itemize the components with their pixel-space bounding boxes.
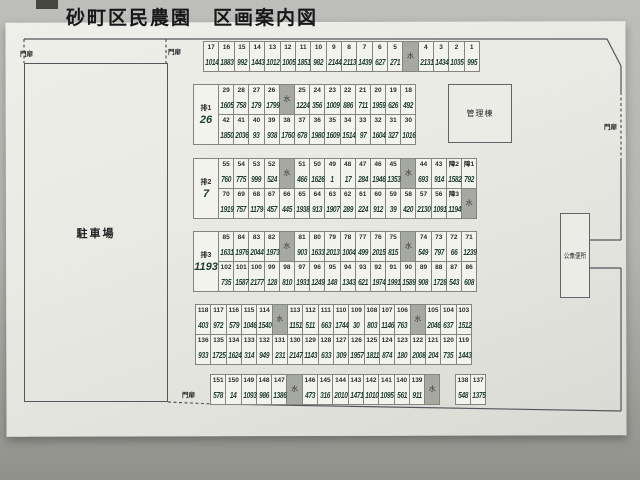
plot-number: 111 — [319, 305, 333, 317]
plot-cell: 801633 — [309, 231, 325, 262]
plot-number: 44 — [416, 159, 430, 171]
plot-handwritten-value: 1980 — [311, 127, 323, 144]
plot-number: 130 — [288, 335, 302, 347]
plot-cell: 136933 — [195, 334, 211, 365]
plot-handwritten-value: 1744 — [335, 317, 347, 334]
plot-number: 3 — [434, 42, 448, 54]
plot-handwritten-value: 1626 — [311, 171, 323, 188]
plot-handwritten-value: 2177 — [251, 274, 263, 291]
plot-handwritten-value: 1443 — [458, 347, 470, 364]
plot-handwritten-value: 1 — [327, 171, 339, 188]
plot-handwritten-value: 224 — [357, 201, 369, 218]
side-label-text: 排2 — [201, 177, 212, 187]
plot-number: 108 — [365, 305, 379, 317]
plot-cell: 障31194 — [446, 188, 462, 219]
plot-number: 95 — [325, 262, 339, 274]
side-label-handwritten-value: 1193 — [194, 261, 218, 273]
plot-cell: 39938 — [264, 114, 280, 145]
plot-cell: 障1792 — [461, 158, 477, 189]
plot-handwritten-value: 1631 — [220, 244, 232, 261]
plot-handwritten-value: 986 — [258, 387, 270, 404]
plot-number: 115 — [242, 305, 256, 317]
plot-handwritten-value: 1194 — [448, 201, 460, 218]
plot-handwritten-value: 1540 — [259, 317, 271, 334]
plot-cell: 106763 — [394, 304, 410, 335]
plot-cell: 58420 — [400, 188, 416, 219]
plot-cell: 1431471 — [348, 374, 364, 405]
plot-cell: 87543 — [446, 261, 462, 292]
plot-handwritten-value: 1004 — [342, 244, 354, 261]
plot-handwritten-value: 289 — [342, 201, 354, 218]
plot-number: 27 — [249, 85, 263, 97]
plot-cell: 832044 — [248, 231, 264, 262]
plot-number: 105 — [426, 305, 440, 317]
plot-cell: 64913 — [309, 188, 325, 219]
plot-handwritten-value: 1179 — [251, 201, 263, 218]
plot-number: 79 — [325, 232, 339, 244]
plot-cell: 941343 — [340, 261, 356, 292]
plot-cell: 1151046 — [241, 304, 257, 335]
plot-cell: 148986 — [256, 374, 272, 405]
plot-handwritten-value: 561 — [396, 387, 408, 404]
plot-number: 4 — [419, 42, 433, 54]
plot-handwritten-value: 999 — [251, 171, 263, 188]
plot-handwritten-value: 775 — [235, 171, 247, 188]
plot-cell: 15014 — [225, 374, 241, 405]
plot-number: 55 — [219, 159, 233, 171]
plot-number: 138 — [456, 375, 470, 387]
plot-cell: 75815 — [385, 231, 401, 262]
plot-cell: 93621 — [355, 261, 371, 292]
plot-number: 50 — [310, 159, 324, 171]
plot-handwritten-value: 549 — [418, 244, 430, 261]
plot-cell: 341514 — [340, 114, 356, 145]
plot-handwritten-value: 1143 — [305, 347, 317, 364]
plot-cell: 99128 — [264, 261, 280, 292]
plot-handwritten-value: 1151 — [289, 317, 301, 334]
plot-cell: 37678 — [294, 114, 310, 145]
plot-cell: 1251811 — [364, 334, 380, 365]
plot-cell: 1071146 — [379, 304, 395, 335]
plot-number: 118 — [196, 305, 210, 317]
plot-number: 26 — [265, 85, 279, 97]
water-tap-cell: 水 — [410, 304, 426, 335]
plot-cell: 118403 — [195, 304, 211, 335]
plot-cell: 140561 — [394, 374, 410, 405]
block-side-label: 排31193 — [193, 231, 219, 292]
parking-label: 駐車場 — [77, 225, 116, 241]
plot-number: 124 — [380, 335, 394, 347]
plot-handwritten-value: 933 — [197, 347, 209, 364]
plot-row: 55760547755399952524水5146650162649148174… — [218, 158, 477, 189]
plot-cell: 121005 — [280, 41, 296, 72]
plot-number: 40 — [249, 115, 263, 127]
plot-handwritten-value: 316 — [319, 387, 331, 404]
plot-number: 38 — [280, 115, 294, 127]
plot-number: 84 — [234, 232, 248, 244]
plot-cell: 障21582 — [446, 158, 462, 189]
plot-number: 51 — [295, 159, 309, 171]
plot-cell: 711239 — [461, 231, 477, 262]
plot-number: 49 — [325, 159, 339, 171]
plot-row: 851631841976832044821973水819038016337920… — [218, 231, 477, 262]
plot-number: 2 — [449, 42, 463, 54]
plot-cell: 62289 — [340, 188, 356, 219]
plot-number: 障3 — [447, 189, 461, 201]
plot-cell: 501626 — [309, 158, 325, 189]
plot-handwritten-value: 1959 — [372, 97, 384, 114]
east-wall — [590, 66, 621, 411]
plot-cell: 4817 — [340, 158, 356, 189]
plot-handwritten-value: 356 — [311, 97, 323, 114]
plot-cell: 351609 — [324, 114, 340, 145]
plot-handwritten-value: 621 — [357, 274, 369, 291]
plot-number: 29 — [219, 85, 233, 97]
plot-number: 59 — [386, 189, 400, 201]
plot-number: 102 — [219, 262, 233, 274]
plot-handwritten-value: 284 — [357, 171, 369, 188]
plot-handwritten-value: 735 — [443, 347, 455, 364]
plot-number: 77 — [356, 232, 370, 244]
plot-handwritten-value: 972 — [213, 317, 225, 334]
plot-cell: 95148 — [324, 261, 340, 292]
plot-cell: 98810 — [279, 261, 295, 292]
plot-number: 99 — [265, 262, 279, 274]
plot-handwritten-value: 457 — [266, 201, 278, 218]
plot-handwritten-value: 874 — [381, 347, 393, 364]
plot-handwritten-value: 1851 — [297, 54, 309, 71]
plot-cell: 1411095 — [378, 374, 394, 405]
plot-number: 30 — [401, 115, 415, 127]
plot-number: 37 — [295, 115, 309, 127]
plot-cell: 1141540 — [256, 304, 272, 335]
plot-number: 93 — [356, 262, 370, 274]
plot-handwritten-value: 1471 — [350, 387, 362, 404]
plot-handwritten-value: 1760 — [281, 127, 293, 144]
plot-cell: 102735 — [218, 261, 234, 292]
plot-handwritten-value: 1604 — [372, 127, 384, 144]
plot-number: 14 — [250, 42, 264, 54]
plot-handwritten-value: 608 — [463, 274, 475, 291]
photo-background: 砂町区民農園 区画案内図 駐車場 管理棟 公衆便所 — [0, 0, 640, 480]
plot-number: 39 — [265, 115, 279, 127]
plot-number: 36 — [310, 115, 324, 127]
plot-cell: 145316 — [317, 374, 333, 405]
plot-cell: 291605 — [218, 84, 234, 115]
plot-cell: 116579 — [226, 304, 242, 335]
plot-number: 60 — [371, 189, 385, 201]
plot-cell: 651938 — [294, 188, 310, 219]
plot-number: 20 — [371, 85, 385, 97]
plot-number: 140 — [395, 375, 409, 387]
plot-number: 136 — [196, 335, 210, 347]
plot-handwritten-value: 309 — [335, 347, 347, 364]
plot-handwritten-value: 39 — [387, 201, 399, 218]
plot-cell: 1101744 — [333, 304, 349, 335]
plot-handwritten-value: 445 — [281, 201, 293, 218]
plot-handwritten-value: 578 — [212, 387, 224, 404]
plot-handwritten-value: 1991 — [387, 274, 399, 291]
plot-handwritten-value: 66 — [448, 244, 460, 261]
plot-cell: 171014 — [203, 41, 219, 72]
plot-handwritten-value: 995 — [466, 54, 478, 71]
farm-map: 砂町区民農園 区画案内図 駐車場 管理棟 公衆便所 — [0, 0, 640, 480]
plot-cell: 1442010 — [332, 374, 348, 405]
plot-cell: 381760 — [279, 114, 295, 145]
plot-cell: 60912 — [370, 188, 386, 219]
plot-handwritten-value: 1434 — [435, 54, 447, 71]
plot-handwritten-value: 1443 — [251, 54, 263, 71]
toilet-label: 公衆便所 — [564, 251, 586, 261]
plot-cell: 1471386 — [271, 374, 287, 405]
plot-cell: 4093 — [248, 114, 264, 145]
plot-handwritten-value: 1439 — [359, 54, 371, 71]
plot-handwritten-value: 2036 — [235, 127, 247, 144]
plot-cell: 1052046 — [425, 304, 441, 335]
plot-handwritten-value: 271 — [389, 54, 401, 71]
plot-number: 119 — [457, 335, 471, 347]
plot-handwritten-value: 128 — [266, 274, 278, 291]
plot-handwritten-value: 1005 — [282, 54, 294, 71]
plot-number: 15 — [235, 42, 249, 54]
water-tap-cell: 水 — [400, 231, 416, 262]
plot-number: 16 — [219, 42, 233, 54]
plot-number: 83 — [249, 232, 263, 244]
plot-cell: 421850 — [218, 114, 234, 145]
plot-handwritten-value: 914 — [433, 171, 445, 188]
plot-cell: 111663 — [318, 304, 334, 335]
plot-number: 52 — [265, 159, 279, 171]
plot-row: 1515781501414910931489861471386水14647314… — [210, 374, 486, 405]
plot-number: 85 — [219, 232, 233, 244]
plot-cell: 121204 — [425, 334, 441, 365]
plot-cell: 572130 — [415, 188, 431, 219]
plot-number: 75 — [386, 232, 400, 244]
plot-number: 18 — [401, 85, 415, 97]
plot-handwritten-value: 903 — [296, 244, 308, 261]
plot-cell: 1131151 — [287, 304, 303, 335]
plot-number: 116 — [227, 305, 241, 317]
side-label-text: 排3 — [201, 250, 212, 260]
plot-handwritten-value: 2013 — [327, 244, 339, 261]
plot-handwritten-value: 757 — [235, 201, 247, 218]
management-building: 管理棟 — [448, 84, 512, 143]
plot-number: 137 — [471, 375, 485, 387]
plot-cell: 1261957 — [348, 334, 364, 365]
plot-handwritten-value: 1091 — [433, 201, 445, 218]
plot-cell: 31434 — [433, 41, 449, 72]
plot-cell: 5939 — [385, 188, 401, 219]
plot-number: 107 — [380, 305, 394, 317]
plot-cell: 141443 — [249, 41, 265, 72]
plot-handwritten-value: 1249 — [311, 274, 323, 291]
water-tap-cell: 水 — [424, 374, 440, 405]
plot-handwritten-value: 1512 — [458, 317, 470, 334]
plot-cell: 146473 — [302, 374, 318, 405]
plot-handwritten-value: 815 — [387, 244, 399, 261]
plot-number: 145 — [318, 375, 332, 387]
plot-handwritten-value: 466 — [296, 171, 308, 188]
plot-handwritten-value: 1633 — [311, 244, 323, 261]
plot-handwritten-value: 2008 — [412, 347, 424, 364]
plot-row: 1710141618831599214144313101212100511185… — [203, 41, 480, 72]
plot-cell: 1031512 — [456, 304, 472, 335]
plot-number: 33 — [356, 115, 370, 127]
plot-number: 106 — [395, 305, 409, 317]
plot-number: 97 — [295, 262, 309, 274]
plot-handwritten-value: 912 — [372, 201, 384, 218]
plot-cell: 111851 — [295, 41, 311, 72]
plot-handwritten-value: 760 — [220, 171, 232, 188]
plot-handwritten-value: 2130 — [418, 201, 430, 218]
plot-cell: 131012 — [264, 41, 280, 72]
plot-number: 24 — [310, 85, 324, 97]
plot-handwritten-value: 1239 — [463, 244, 475, 261]
plot-number: 120 — [441, 335, 455, 347]
plot-cell: 92144 — [326, 41, 342, 72]
plot-handwritten-value: 1014 — [205, 54, 217, 71]
plot-number: 障1 — [462, 159, 476, 171]
plot-cell: 161883 — [218, 41, 234, 72]
plot-cell: 19626 — [385, 84, 401, 115]
management-label: 管理棟 — [467, 108, 494, 119]
plot-number: 149 — [242, 375, 256, 387]
plot-number: 9 — [327, 42, 341, 54]
plot-number: 112 — [303, 305, 317, 317]
plot-handwritten-value: 908 — [418, 274, 430, 291]
plot-cell: 104637 — [440, 304, 456, 335]
plot-handwritten-value: 179 — [251, 97, 263, 114]
water-tap-cell: 水 — [279, 158, 295, 189]
plot-cell: 81903 — [294, 231, 310, 262]
plot-cell: 71439 — [356, 41, 372, 72]
plot-handwritten-value: 1976 — [235, 244, 247, 261]
plot-cell: 1995 — [464, 41, 480, 72]
plot-cell: 108803 — [364, 304, 380, 335]
plot-number: 67 — [265, 189, 279, 201]
plot-cell: 1291143 — [302, 334, 318, 365]
plot-number: 114 — [257, 305, 271, 317]
plot-cell: 132949 — [256, 334, 272, 365]
plot-handwritten-value: 2010 — [335, 387, 347, 404]
plot-row: 11840311797211657911510461141540水1131151… — [195, 304, 472, 335]
plot-handwritten-value: 93 — [251, 127, 263, 144]
plot-cell: 128633 — [318, 334, 334, 365]
plot-handwritten-value: 1046 — [243, 317, 255, 334]
plot-number: 150 — [226, 375, 240, 387]
plot-cell: 1341624 — [226, 334, 242, 365]
plot-handwritten-value: 626 — [387, 97, 399, 114]
plot-handwritten-value: 1016 — [403, 127, 415, 144]
plot-handwritten-value: 180 — [397, 347, 409, 364]
plot-number: 74 — [416, 232, 430, 244]
plot-cell: 231009 — [324, 84, 340, 115]
plot-number: 73 — [432, 232, 446, 244]
plot-cell: 43914 — [431, 158, 447, 189]
plot-handwritten-value: 1811 — [366, 347, 378, 364]
south-wall — [214, 404, 621, 411]
plot-cell: 10930 — [348, 304, 364, 335]
plot-number: 127 — [334, 335, 348, 347]
gate-label-north: 門扉 — [168, 46, 181, 56]
plot-cell: 69757 — [233, 188, 249, 219]
plot-number: 78 — [341, 232, 355, 244]
plot-number: 71 — [462, 232, 476, 244]
plot-number: 133 — [242, 335, 256, 347]
water-tap-cell: 水 — [461, 188, 477, 219]
plot-handwritten-value: 1919 — [220, 201, 232, 218]
water-tap-cell: 水 — [402, 41, 418, 72]
plot-number: 126 — [349, 335, 363, 347]
plot-handwritten-value: 693 — [418, 171, 430, 188]
plot-cell: 120735 — [440, 334, 456, 365]
plot-handwritten-value: 1035 — [451, 54, 463, 71]
plot-number: 135 — [211, 335, 225, 347]
plot-cell: 82113 — [341, 41, 357, 72]
plot-number: 80 — [310, 232, 324, 244]
plot-cell: 73797 — [431, 231, 447, 262]
plot-cell: 133314 — [241, 334, 257, 365]
plot-number: 128 — [319, 335, 333, 347]
plot-handwritten-value: 886 — [342, 97, 354, 114]
plot-number: 32 — [371, 115, 385, 127]
plot-cell: 1222008 — [410, 334, 426, 365]
block-side-label: 排126 — [193, 84, 219, 145]
plot-handwritten-value: 810 — [281, 274, 293, 291]
plot-handwritten-value: 1582 — [448, 171, 460, 188]
plot-number: 5 — [388, 42, 402, 54]
plot-cell: 6627 — [372, 41, 388, 72]
plot-number: 47 — [356, 159, 370, 171]
plot-handwritten-value: 982 — [313, 54, 325, 71]
plot-handwritten-value: 633 — [320, 347, 332, 364]
plot-number: 109 — [349, 305, 363, 317]
plot-cell: 762015 — [370, 231, 386, 262]
plot-number: 113 — [288, 305, 302, 317]
plot-row: 2916052875827179261799水25122424356231009… — [218, 84, 416, 115]
plot-number: 122 — [411, 335, 425, 347]
plot-number: 65 — [295, 189, 309, 201]
plot-cell: 89908 — [415, 261, 431, 292]
plot-number: 86 — [462, 262, 476, 274]
plot-number: 148 — [257, 375, 271, 387]
plot-number: 129 — [303, 335, 317, 347]
plot-number: 139 — [410, 375, 424, 387]
plot-cell: 22886 — [340, 84, 356, 115]
plot-handwritten-value: 30 — [351, 317, 363, 334]
plot-number: 11 — [296, 42, 310, 54]
plot-number: 41 — [234, 115, 248, 127]
plot-cell: 21711 — [355, 84, 371, 115]
plot-number: 101 — [234, 262, 248, 274]
plot-cell: 201959 — [370, 84, 386, 115]
plot-cell: 971931 — [294, 261, 310, 292]
plot-number: 100 — [249, 262, 263, 274]
plot-handwritten-value: 499 — [357, 244, 369, 261]
plot-cell: 1011587 — [233, 261, 249, 292]
plot-handwritten-value: 579 — [228, 317, 240, 334]
plot-cell: 911991 — [385, 261, 401, 292]
plot-handwritten-value: 1799 — [266, 97, 278, 114]
plot-handwritten-value: 1224 — [296, 97, 308, 114]
plot-number: 障2 — [447, 159, 461, 171]
plot-handwritten-value: 1728 — [433, 274, 445, 291]
side-label-handwritten-value: 26 — [200, 114, 212, 126]
plot-cell: 139911 — [409, 374, 425, 405]
water-tap-cell: 水 — [279, 231, 295, 262]
plot-cell: 301016 — [400, 114, 416, 145]
plot-cell: 66445 — [279, 188, 295, 219]
